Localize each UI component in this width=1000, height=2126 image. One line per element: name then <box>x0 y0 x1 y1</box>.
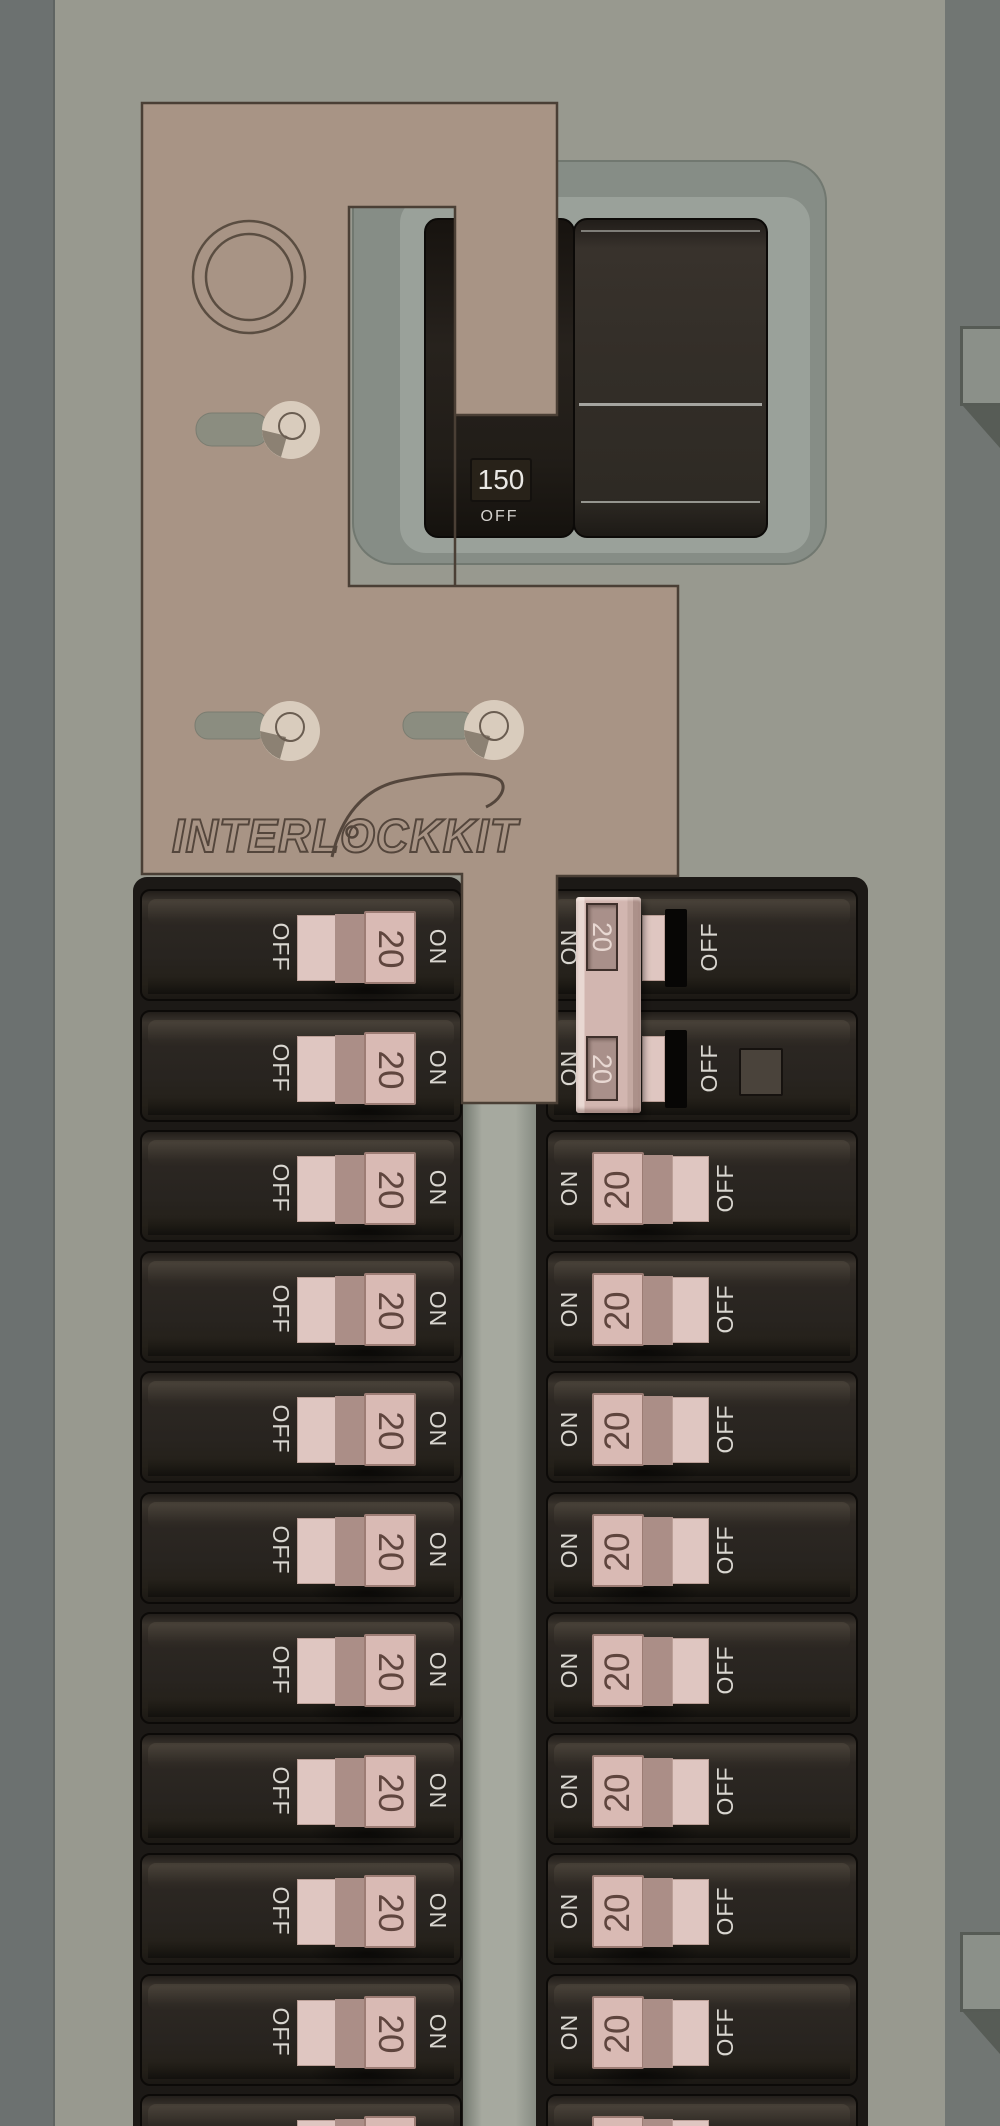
interlock-plate-layer: INTERLOCKKIT <box>0 0 1000 2126</box>
tie-bar-amp-label: 20 <box>587 922 617 952</box>
generator-tie-bar[interactable]: 2020 <box>576 897 641 1113</box>
tie-bar-amp-label: 20 <box>587 1053 617 1083</box>
tie-bar-amp-window-1: 20 <box>586 903 618 971</box>
tie-bar-amp-window-2: 20 <box>586 1036 618 1101</box>
breaker-panel: 150 OFF OFF20ONOFF20ONOFF20ONOFF20ONOFF2… <box>0 0 1000 2126</box>
